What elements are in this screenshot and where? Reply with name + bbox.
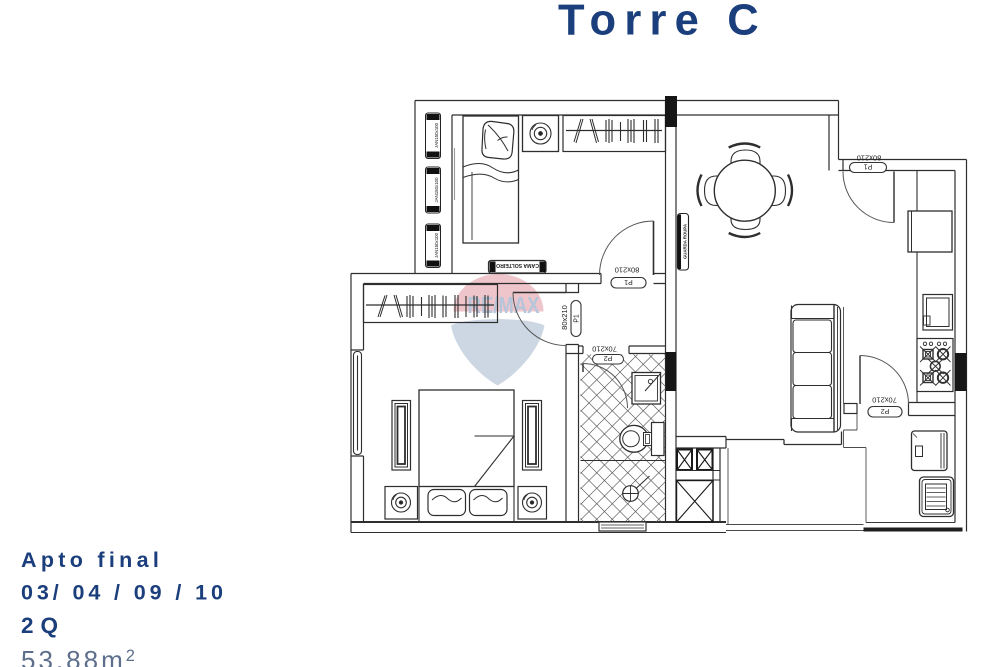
svg-text:P1: P1	[864, 163, 873, 170]
svg-text:JAN150x100: JAN150x100	[434, 177, 439, 203]
svg-text:80x210: 80x210	[857, 154, 882, 163]
svg-text:CAMA SOLTEIRO: CAMA SOLTEIRO	[496, 262, 539, 268]
svg-text:P2: P2	[604, 354, 613, 361]
svg-text:03/ 04 / 09 / 10: 03/ 04 / 09 / 10	[21, 581, 227, 605]
svg-text:Apto final: Apto final	[21, 548, 163, 572]
svg-text:JAN150x100: JAN150x100	[434, 232, 439, 258]
svg-text:2Q: 2Q	[21, 613, 65, 638]
svg-text:70x210: 70x210	[592, 345, 617, 354]
svg-text:Torre C: Torre C	[558, 0, 767, 45]
svg-text:P1: P1	[574, 314, 581, 323]
svg-text:GUARDA ROUPA: GUARDA ROUPA	[682, 224, 687, 259]
svg-text:80x210: 80x210	[615, 266, 640, 275]
svg-text:JAN150x100: JAN150x100	[434, 122, 439, 148]
svg-text:80x210: 80x210	[560, 305, 569, 330]
svg-text:70x210: 70x210	[872, 396, 897, 405]
svg-text:P1: P1	[624, 278, 633, 285]
svg-text:53,88m2: 53,88m2	[21, 645, 138, 667]
svg-text:P2: P2	[881, 407, 890, 414]
